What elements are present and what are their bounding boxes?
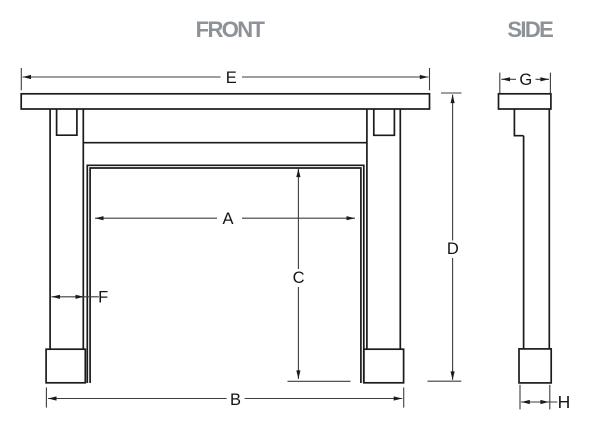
svg-text:H: H bbox=[558, 392, 571, 412]
svg-text:F: F bbox=[98, 289, 108, 307]
svg-text:SIDE: SIDE bbox=[507, 17, 553, 42]
svg-text:E: E bbox=[226, 69, 237, 87]
svg-text:D: D bbox=[447, 240, 459, 258]
svg-text:B: B bbox=[230, 391, 241, 409]
svg-text:C: C bbox=[293, 269, 305, 287]
svg-text:FRONT: FRONT bbox=[196, 17, 266, 42]
svg-text:A: A bbox=[222, 210, 233, 228]
svg-text:G: G bbox=[519, 71, 532, 89]
